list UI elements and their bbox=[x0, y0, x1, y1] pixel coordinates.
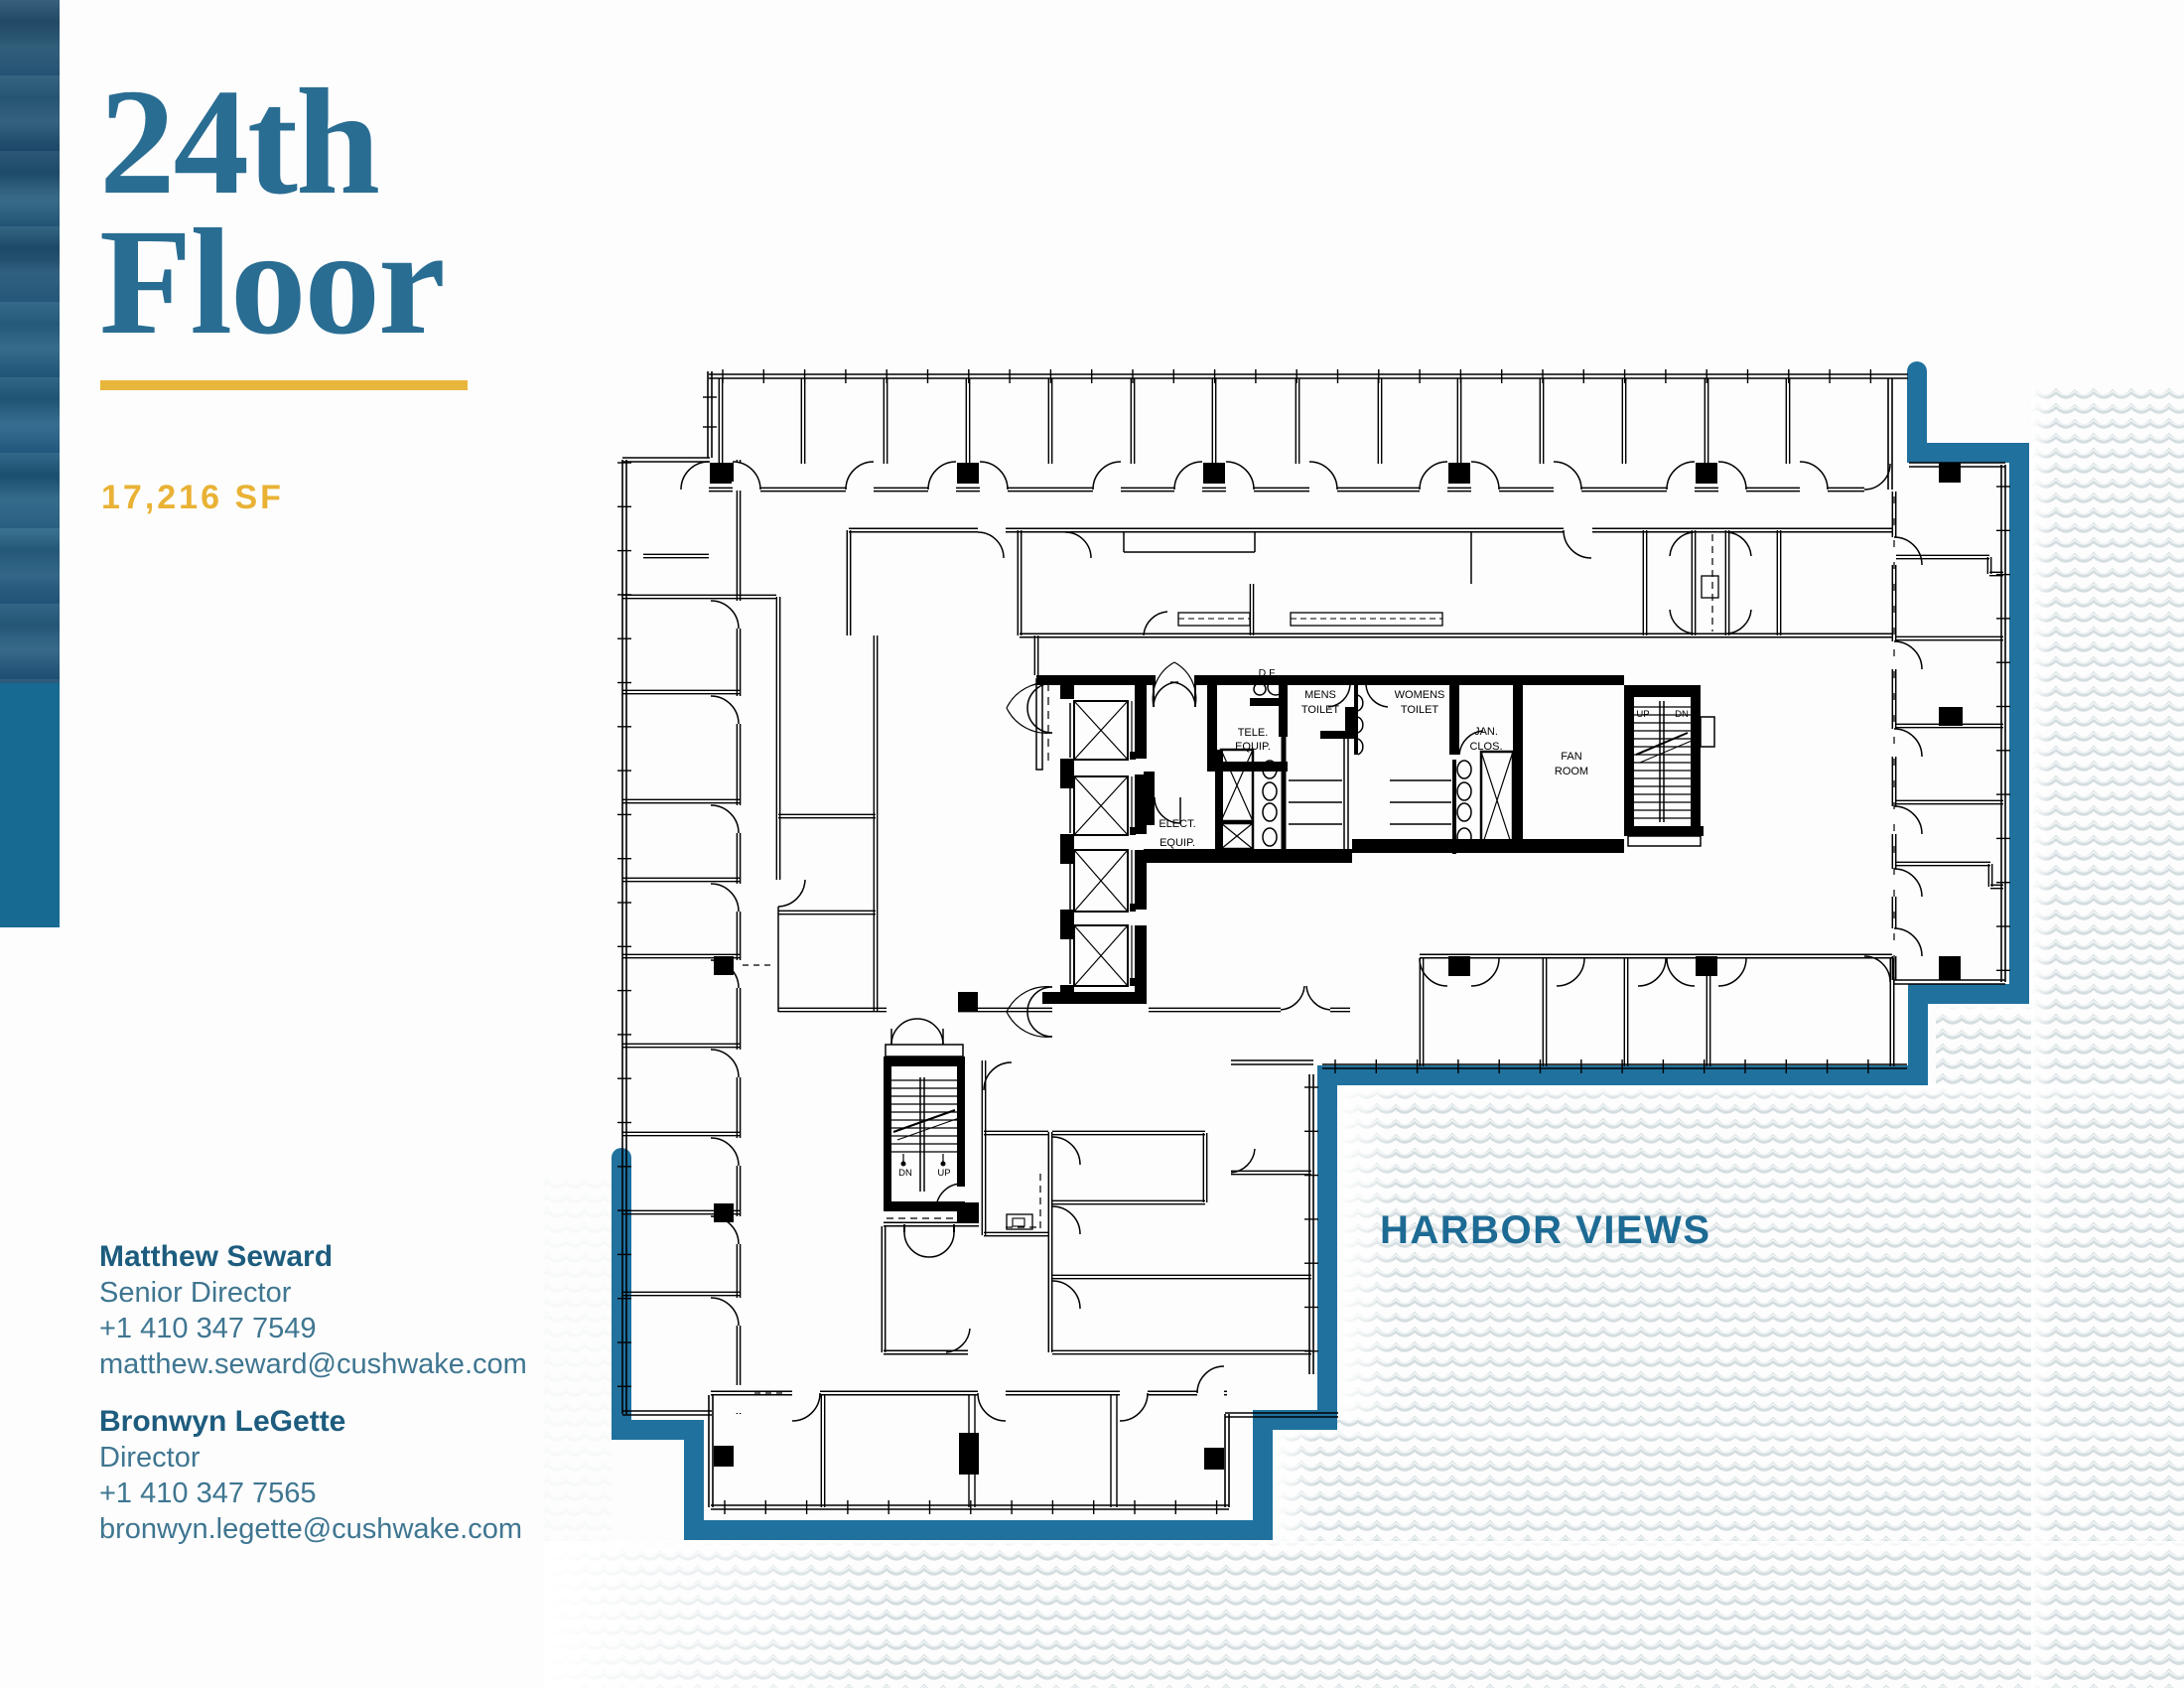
svg-text:ELECT.: ELECT. bbox=[1159, 818, 1195, 830]
svg-text:D.F.: D.F. bbox=[1259, 667, 1278, 679]
svg-text:UP: UP bbox=[937, 1168, 950, 1179]
svg-text:DN: DN bbox=[898, 1168, 912, 1179]
svg-text:MENS: MENS bbox=[1304, 689, 1336, 701]
svg-text:TOILET: TOILET bbox=[1401, 704, 1439, 716]
svg-text:WOMENS: WOMENS bbox=[1395, 689, 1445, 701]
svg-text:UP: UP bbox=[1636, 709, 1649, 720]
svg-text:FAN: FAN bbox=[1561, 751, 1581, 763]
svg-text:DN: DN bbox=[1675, 709, 1689, 720]
svg-text:TELE.: TELE. bbox=[1238, 727, 1269, 739]
svg-text:ROOM: ROOM bbox=[1555, 766, 1588, 777]
svg-text:EQUIP.: EQUIP. bbox=[1160, 837, 1195, 849]
